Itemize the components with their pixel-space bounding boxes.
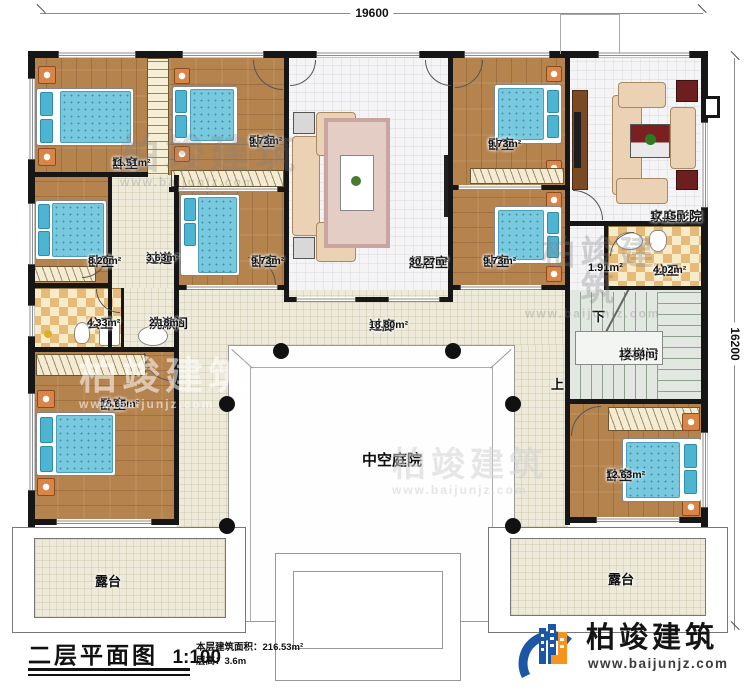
theater-sofa (616, 178, 668, 204)
wall (448, 51, 453, 302)
window (316, 51, 420, 58)
nightstand (37, 478, 55, 496)
column (505, 518, 521, 534)
theater-sofa (618, 82, 666, 108)
title-underline (28, 668, 190, 671)
wall (28, 347, 177, 352)
pillow (547, 90, 559, 113)
side-table (293, 112, 315, 134)
window (186, 285, 278, 290)
side-table (293, 237, 315, 259)
nightstand (37, 390, 55, 408)
wall-protrusion (703, 96, 720, 118)
pillow (547, 115, 559, 138)
dimension-tick (697, 4, 706, 13)
pillow (547, 236, 559, 258)
pillow (175, 115, 187, 138)
brand-logo-icon (516, 620, 580, 684)
pillow (175, 90, 187, 113)
dimension-right-value: 16200 (728, 322, 742, 365)
window (28, 78, 35, 160)
plan-title: 二层平面图 (28, 642, 158, 668)
column (505, 396, 521, 412)
window (701, 432, 708, 508)
mattress (56, 415, 113, 473)
mattress (60, 91, 131, 143)
window (464, 51, 550, 58)
nightstand (546, 66, 562, 82)
window (296, 297, 356, 302)
closet-strip (147, 58, 169, 190)
nightstand (174, 146, 190, 162)
wall (604, 286, 706, 290)
window (28, 393, 35, 491)
pillow (184, 198, 196, 221)
wall (604, 226, 608, 290)
building-area: 本层建筑面积：216.53m² (196, 641, 326, 655)
wardrobe (171, 170, 284, 187)
pillow (547, 212, 559, 234)
tv (574, 112, 581, 168)
pillow (38, 231, 50, 256)
bay-outline (560, 14, 620, 54)
hallway-floor (111, 175, 177, 291)
dimension-tick (36, 4, 45, 13)
plant (351, 176, 361, 186)
stair-flight (658, 292, 703, 402)
window (458, 185, 542, 190)
column (273, 343, 289, 359)
mattress (198, 197, 237, 273)
gallery-left-floor (177, 345, 228, 527)
window (28, 203, 35, 265)
speaker (676, 170, 698, 190)
wall (565, 399, 706, 404)
terrace-left-tile (34, 538, 226, 618)
pillow (40, 417, 53, 443)
foyer-floor (568, 226, 608, 292)
window (596, 517, 680, 523)
nightstand (38, 148, 56, 166)
wall (28, 172, 148, 177)
title-info: 本层建筑面积：216.53m² 层高：3.6m (196, 641, 326, 671)
plant (645, 134, 656, 145)
pillow (184, 223, 196, 246)
window (178, 187, 278, 192)
mattress (498, 210, 544, 260)
nightstand (174, 68, 190, 84)
column (219, 518, 235, 534)
pillow (40, 446, 53, 472)
wall (28, 283, 112, 288)
mattress (52, 203, 104, 257)
brand-name: 柏竣建筑 (586, 614, 746, 656)
pillow (684, 470, 697, 494)
title-underline (28, 674, 190, 676)
window (56, 519, 152, 525)
mattress (498, 88, 544, 140)
dimension-top-value: 19600 (350, 6, 393, 20)
wardrobe (36, 354, 146, 376)
wardrobe (470, 168, 564, 184)
wall (284, 51, 289, 302)
floor-height: 层高：3.6m (196, 655, 326, 669)
toilet (649, 230, 667, 252)
theater-chaise (670, 107, 696, 169)
mattress (190, 89, 234, 141)
floor-plan: 卧室11.51m² 卧室9.73m² 卧室9.73m² 家庭影院17.15m² … (0, 0, 750, 690)
window (701, 122, 708, 208)
gallery-right-floor (514, 345, 568, 527)
pillow (38, 204, 50, 229)
pillow (684, 444, 697, 468)
window (388, 297, 440, 302)
speaker (676, 80, 698, 102)
pillow (40, 119, 53, 143)
nightstand (546, 266, 562, 282)
nightstand (38, 66, 56, 84)
brand-block: 柏竣建筑 www.baijunjz.com (516, 614, 746, 686)
column (219, 396, 235, 412)
wall (121, 288, 124, 348)
brand-website: www.baijunjz.com (588, 656, 746, 671)
window (460, 285, 542, 290)
window (58, 51, 136, 58)
pillow (40, 92, 53, 116)
fixture (44, 330, 52, 338)
window (182, 51, 264, 58)
window (28, 305, 35, 337)
nightstand (682, 413, 700, 431)
column (445, 343, 461, 359)
